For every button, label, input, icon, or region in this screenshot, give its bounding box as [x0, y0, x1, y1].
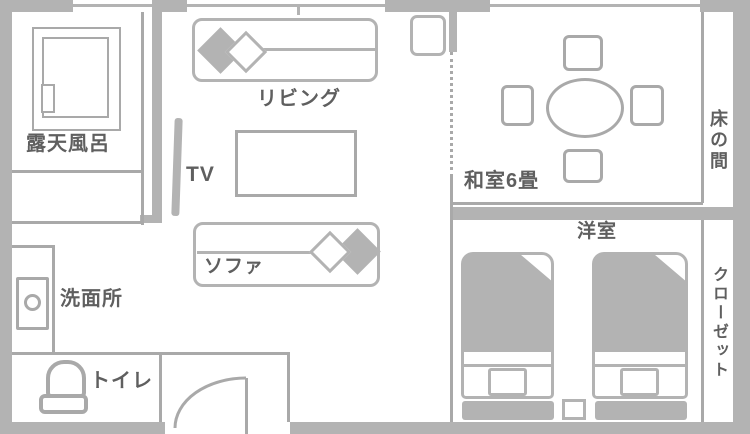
sofa-label: ソファ	[204, 257, 264, 276]
wall-stub-living-tatami	[449, 12, 457, 52]
toilet-base	[39, 394, 88, 414]
entry-door-leaf	[245, 378, 248, 434]
wall-top-pillar	[152, 0, 187, 12]
bed1-headboard	[462, 401, 554, 420]
tatami-label: 和室6畳	[464, 171, 539, 191]
bed2-sheet-line1	[595, 349, 685, 352]
wall-bottom-right	[290, 422, 750, 434]
washroom-label: 洗面所	[60, 289, 123, 309]
tatami-western-left-line	[450, 177, 453, 422]
entry-right-line	[287, 353, 290, 422]
sink-alcove-hline	[12, 245, 55, 248]
bath-room-right-line	[141, 12, 144, 225]
tatami-table	[546, 78, 624, 138]
living-tatami-sliding-door-line	[450, 52, 453, 177]
toilet-room-right-line	[159, 353, 162, 422]
cushion-bottom	[563, 149, 603, 183]
window-top-2	[187, 4, 385, 7]
tokonoma-label: 床の間	[703, 68, 733, 213]
sofa-top-seam	[250, 48, 375, 51]
washroom-bottom-line	[12, 352, 290, 355]
tv-label: TV	[186, 164, 215, 185]
wall-left	[0, 0, 12, 434]
cushion-right	[630, 85, 664, 126]
sink-basin	[24, 294, 41, 311]
window-top-3	[490, 4, 700, 7]
tatami-bottom-line	[452, 202, 703, 205]
living-label: リビング	[257, 89, 341, 109]
bathtub-step	[41, 84, 55, 113]
sink-alcove-vline	[52, 246, 55, 355]
living-table	[235, 130, 357, 197]
bed2-sheet-line2	[595, 364, 685, 367]
wall-tatami-western	[452, 207, 736, 220]
washroom-top-line	[12, 221, 142, 224]
sofa-bottom-seam	[197, 251, 317, 254]
wall-bath-living	[152, 12, 162, 223]
bath-label: 露天風呂	[26, 134, 110, 154]
bed2-pillow	[620, 368, 659, 396]
wall-bottom-left	[0, 422, 165, 434]
bed1-pillow	[488, 368, 527, 396]
cushion-left	[501, 85, 534, 126]
window-top-1	[73, 4, 153, 7]
nightstand	[562, 399, 586, 420]
bed2-headboard	[595, 401, 687, 420]
tv	[171, 118, 182, 216]
living-side-stool	[410, 15, 446, 56]
wall-top-mid	[385, 0, 490, 12]
window-mullion	[297, 4, 300, 15]
floor-plan: 露天風呂 リビング TV ソファ 洗面所 トイレ 和室6畳 床の間 クローゼット…	[0, 0, 750, 434]
toilet-bowl	[46, 360, 86, 398]
cushion-top	[563, 35, 603, 71]
western-label: 洋室	[577, 222, 617, 241]
bed1-sheet-line2	[464, 364, 551, 367]
bath-room-divider-line	[12, 170, 144, 173]
entry-door-arc	[175, 378, 246, 428]
bed1-sheet-line1	[464, 349, 551, 352]
toilet-label: トイレ	[90, 371, 153, 391]
closet-label: クローゼット	[703, 243, 733, 403]
